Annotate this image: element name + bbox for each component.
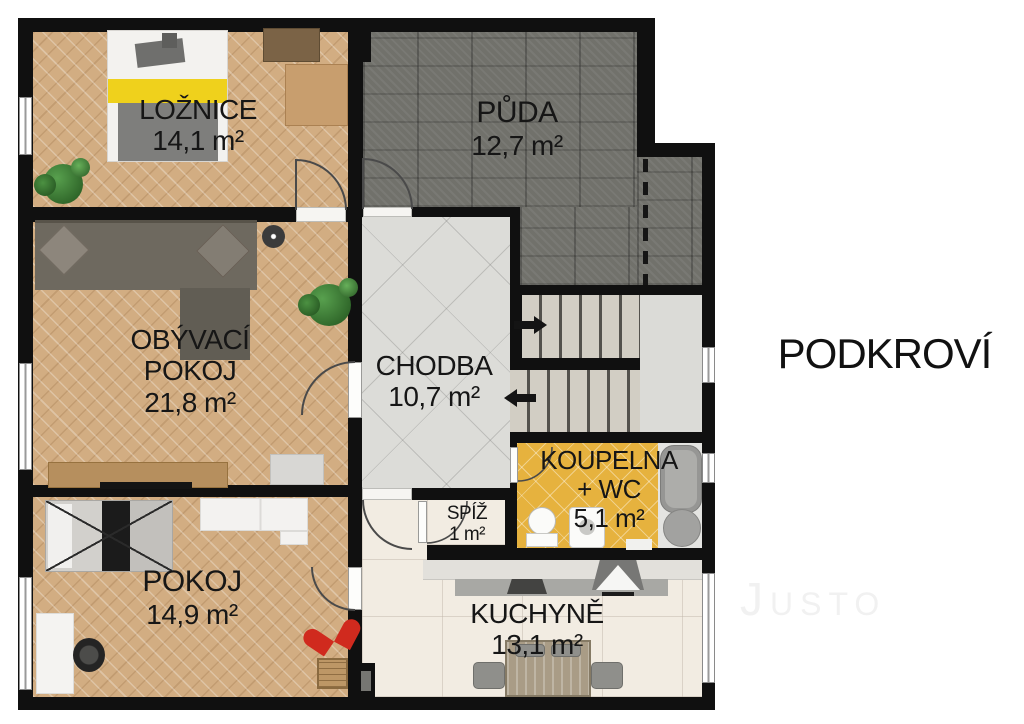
floor-title: PODKROVÍ (752, 330, 1017, 378)
floor-plan: LOŽNICE 14,1 m² PŮDA 12,7 m² OBÝVACÍ POK… (18, 18, 715, 710)
plant-loznice (43, 164, 83, 204)
room-area: 1 m² (426, 524, 508, 545)
room-name: CHODBA (344, 350, 524, 381)
room-name-line1: KOUPELNA (516, 446, 702, 475)
tv (100, 482, 192, 489)
room-area: 10,7 m² (344, 381, 524, 412)
dining-chair-left (473, 662, 505, 689)
room-area: 13,1 m² (417, 629, 657, 660)
room-name: POKOJ (72, 565, 312, 599)
wardrobe (263, 28, 320, 62)
side-table-round (262, 225, 285, 248)
room-label-obyvaci: OBÝVACÍ POKOJ 21,8 m² (70, 324, 310, 418)
sofa-white (200, 498, 308, 531)
desk (36, 613, 74, 694)
stairs-up-arrow-icon (534, 316, 547, 334)
bed-canopy (45, 500, 173, 572)
window-loznice-left (19, 97, 32, 155)
kitchen-chimney-flue (361, 671, 371, 691)
attic-dashed-line (643, 159, 648, 285)
room-label-chodba: CHODBA 10,7 m² (344, 350, 524, 413)
stairs-middle-wall (512, 360, 640, 370)
room-label-pokoj: POKOJ 14,9 m² (72, 565, 312, 630)
attic-pillar (363, 32, 371, 62)
room-area: 14,9 m² (72, 599, 312, 630)
room-name: LOŽNICE (78, 94, 318, 125)
door-arc-loznice (296, 160, 346, 210)
toilet-tank (526, 533, 558, 547)
stairs-up-arrow-shaft (514, 321, 534, 329)
door-arc-kuchyne (363, 500, 412, 549)
room-name-line2: POKOJ (70, 355, 310, 386)
dining-chair-right (591, 662, 623, 689)
room-name: PŮDA (412, 96, 622, 130)
sofa-white-wing (280, 531, 308, 545)
door-arc-pokoj (312, 567, 355, 610)
floor-plan-image: LOŽNICE 14,1 m² PŮDA 12,7 m² OBÝVACÍ POK… (0, 0, 1024, 724)
room-label-kuchyne: KUCHYNĚ 13,1 m² (417, 598, 657, 661)
stairs-landing (640, 295, 702, 432)
beanbag-red (310, 609, 353, 650)
window-kuchyne-right (702, 573, 715, 683)
window-koupelna-right (702, 453, 715, 483)
cooker-hood-inner (596, 565, 640, 590)
room-name: SPÍŽ (426, 503, 508, 524)
rug-small (317, 658, 348, 689)
desk-chair (73, 638, 105, 672)
room-name-line1: OBÝVACÍ (70, 324, 310, 355)
room-floor-puda-lower (520, 207, 637, 285)
window-pokoj-left (19, 577, 32, 690)
room-label-puda: PŮDA 12,7 m² (412, 96, 622, 161)
bed-pillow (135, 38, 186, 68)
cooker-hood-vent (602, 592, 634, 596)
room-name-line2: + WC (516, 475, 702, 504)
door-threshold-kuchyne (362, 488, 412, 500)
kitchen-counter (423, 560, 702, 580)
window-landing-right (702, 347, 715, 383)
room-area: 12,7 m² (412, 130, 622, 161)
building-exterior-cutout (655, 18, 715, 143)
room-label-loznice: LOŽNICE 14,1 m² (78, 94, 318, 157)
room-area: 14,1 m² (78, 125, 318, 156)
bed-canopy-frame (46, 501, 172, 571)
watermark: Justo (740, 572, 886, 626)
room-label-koupelna: KOUPELNA + WC 5,1 m² (516, 446, 702, 533)
plant-obyvaci (307, 284, 351, 326)
room-area: 21,8 m² (70, 387, 310, 418)
armchair (270, 454, 324, 485)
bath-mat (626, 539, 652, 550)
window-obyvaci-left (19, 363, 32, 470)
room-area: 5,1 m² (516, 504, 702, 533)
room-name: KUCHYNĚ (417, 598, 657, 629)
stove (507, 579, 547, 594)
bed-pillow-small (162, 33, 177, 48)
door-arc-puda (363, 159, 412, 209)
cooker-hood (592, 560, 644, 590)
room-label-spiz: SPÍŽ 1 m² (426, 503, 508, 546)
